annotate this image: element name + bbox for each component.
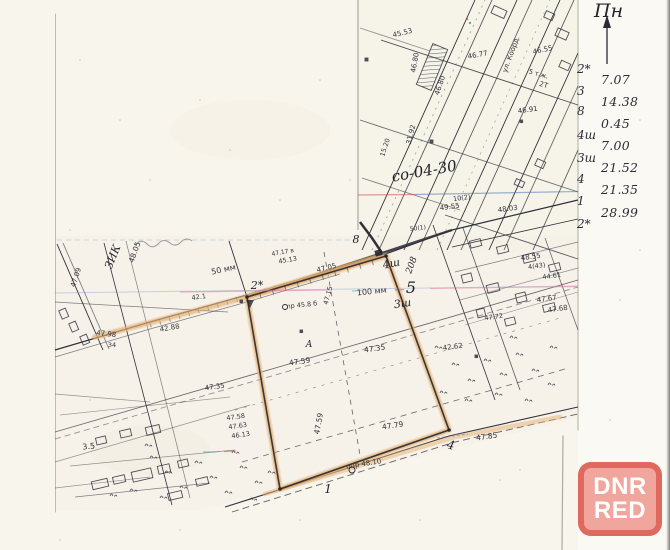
map-elevation-label: 47.85 — [475, 431, 498, 443]
survey-distance: 7.07 — [601, 72, 661, 87]
map-handwritten-label: 8 — [353, 233, 360, 246]
survey-distance: 0.45 — [601, 116, 661, 131]
survey-point: 3 — [577, 84, 603, 98]
map-handwritten-label: 1 — [324, 482, 332, 496]
map-handwritten-label: А — [305, 340, 313, 350]
survey-point: 4 — [577, 172, 603, 186]
map-handwritten-label: 5 — [406, 278, 416, 297]
survey-point: 8 — [577, 104, 603, 118]
map-handwritten-label: 2* — [250, 279, 264, 292]
map-elevation-label: 3.5 — [82, 441, 96, 451]
survey-distance: 14.38 — [601, 94, 661, 109]
survey-distance: 21.52 — [601, 160, 661, 175]
map-elevation-label: 34 — [108, 341, 116, 349]
survey-distance: 21.35 — [601, 182, 661, 197]
map-handwritten-label: 3ш — [393, 296, 412, 311]
scanned-map-page: 45.5346.8046.8046.7746.555 т.ж.2Т46.91ул… — [0, 0, 670, 550]
survey-distance: 28.99 — [601, 205, 661, 220]
page-edge-shadow — [666, 0, 670, 550]
dnr-red-watermark: DNR RED — [578, 462, 662, 536]
survey-point: 4ш — [577, 128, 603, 142]
survey-point: 1 — [577, 194, 603, 208]
survey-panel: Пн 2* 7.07 3 14.38 8 0.45 4ш 7.00 3ш 21.… — [575, 0, 670, 260]
survey-point: 2* — [577, 62, 603, 76]
survey-point: 3ш — [577, 151, 603, 165]
cadastral-map-scan: 45.5346.8046.8046.7746.555 т.ж.2Т46.91ул… — [0, 0, 670, 550]
survey-distance: 7.00 — [601, 138, 661, 153]
survey-point: 2* — [577, 217, 603, 231]
north-arrow-icon — [596, 14, 618, 66]
watermark-line1: DNR — [593, 475, 647, 499]
watermark-line2: RED — [594, 499, 646, 523]
